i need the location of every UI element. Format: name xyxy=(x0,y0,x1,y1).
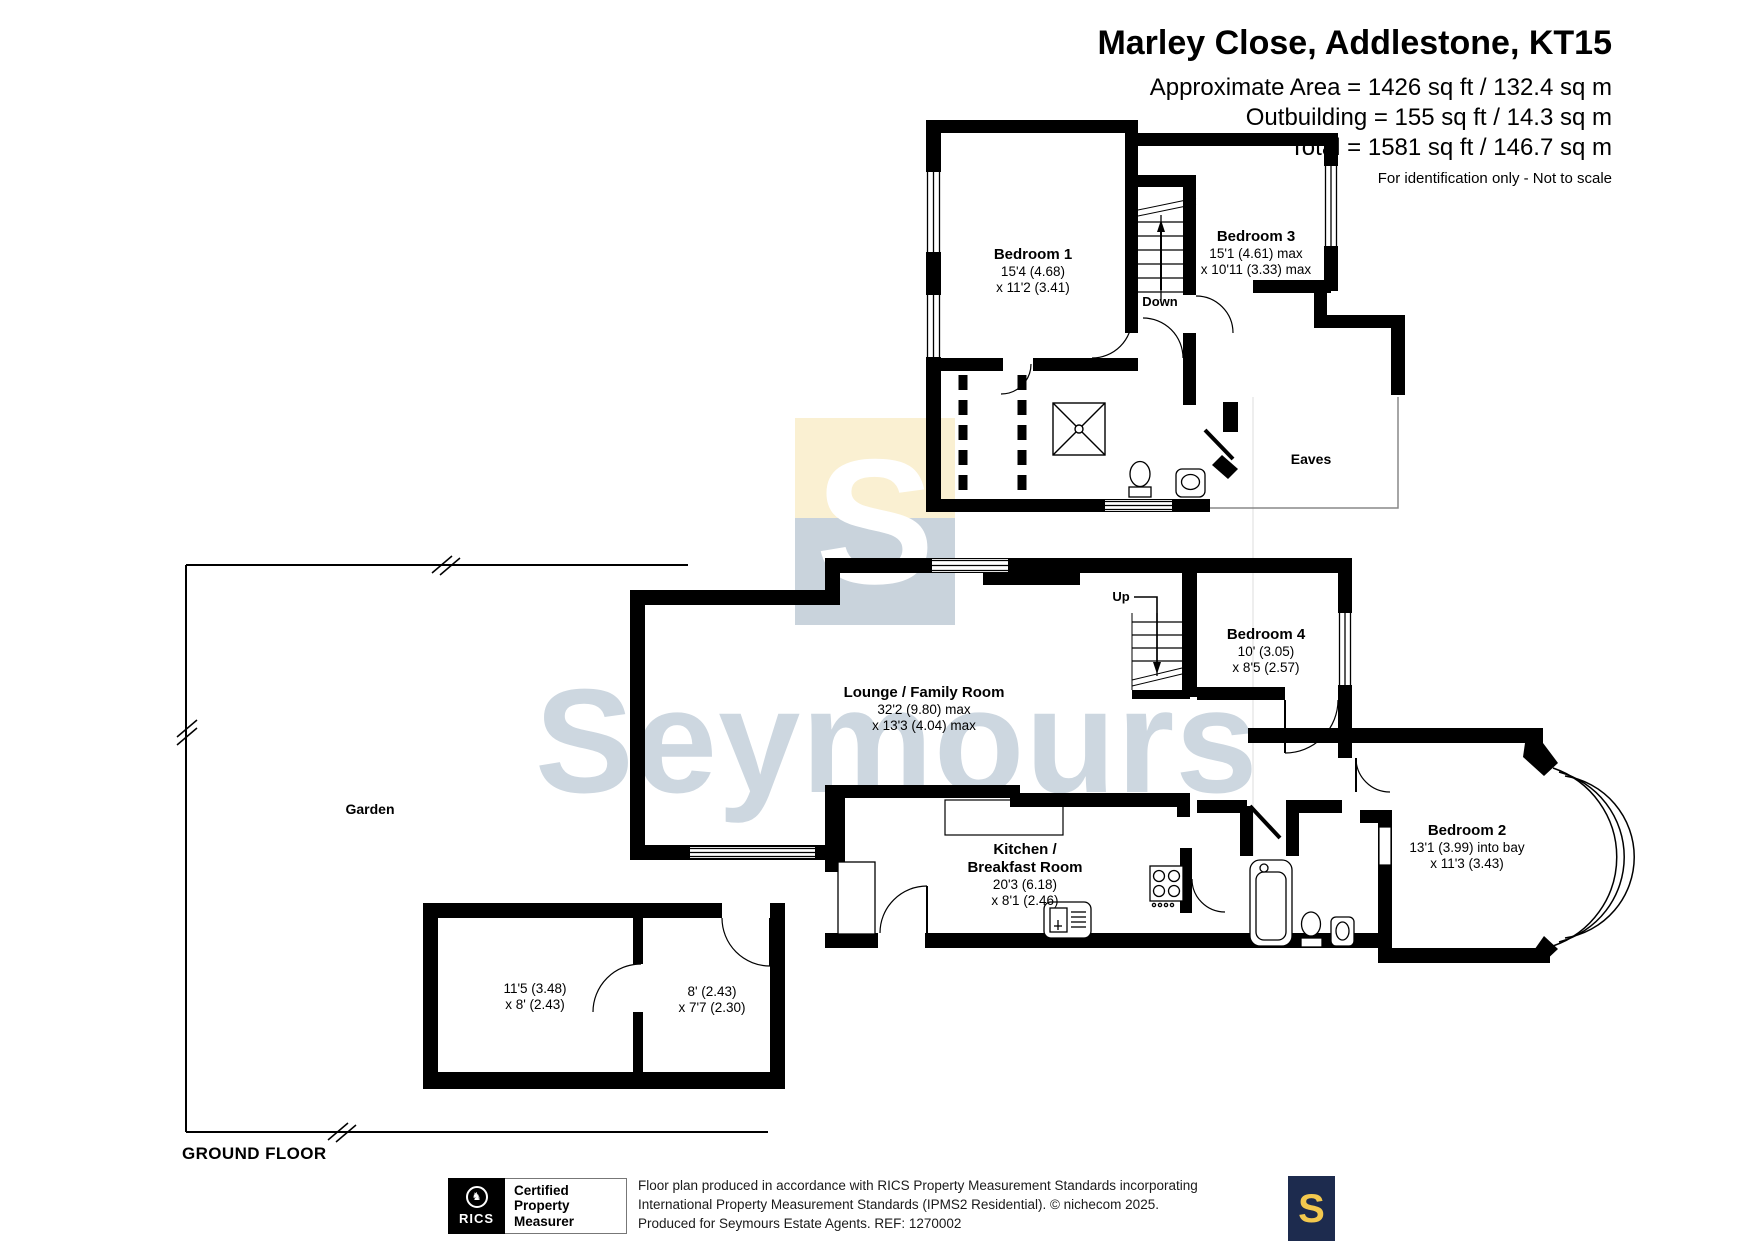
label-bedroom4: Bedroom 4 10' (3.05) x 8'5 (2.57) xyxy=(1227,626,1305,676)
kitchen-dim2: x 8'1 (2.46) xyxy=(967,893,1082,909)
window-bedroom1-lower xyxy=(926,295,941,357)
door-arc-outbuilding-internal xyxy=(593,964,641,1012)
door-leaf-eaves xyxy=(1205,430,1233,459)
lounge-dim1: 32'2 (9.80) max xyxy=(844,702,1005,718)
door-arc-bedroom4 xyxy=(1285,700,1338,753)
disclaimer-line2: International Property Measurement Stand… xyxy=(638,1195,1198,1214)
door-arc-bedroom2 xyxy=(1356,758,1390,792)
door-arc-bedroom3 xyxy=(1196,296,1233,333)
outbuilding-right-dim2: x 7'7 (2.30) xyxy=(678,1000,745,1016)
total-area: Total = 1581 sq ft / 146.7 sq m xyxy=(1097,133,1612,163)
label-eaves: Eaves xyxy=(1291,451,1331,467)
bedroom3-dim2: x 10'11 (3.33) max xyxy=(1201,262,1311,278)
lounge-dim2: x 13'3 (4.04) max xyxy=(844,718,1005,734)
footer-disclaimer: Floor plan produced in accordance with R… xyxy=(638,1176,1198,1233)
seymours-logo: S xyxy=(1288,1176,1335,1241)
bedroom4-dim1: 10' (3.05) xyxy=(1227,644,1305,660)
window-lounge-rear xyxy=(690,847,815,858)
label-outbuilding-left: 11'5 (3.48) x 8' (2.43) xyxy=(503,981,566,1013)
kitchen-name-line1: Kitchen / xyxy=(967,841,1082,859)
bedroom1-dim1: 15'4 (4.68) xyxy=(994,264,1072,280)
rics-certification: ♞ RICS Certified Property Measurer xyxy=(448,1178,627,1234)
lounge-name: Lounge / Family Room xyxy=(844,684,1005,702)
kitchen-dim1: 20'3 (6.18) xyxy=(967,877,1082,893)
bedroom2-dim1: 13'1 (3.99) into bay xyxy=(1409,840,1524,856)
stairs-up xyxy=(1132,597,1182,690)
bedroom4-name: Bedroom 4 xyxy=(1227,626,1305,644)
door-arc-kitchen-rear xyxy=(880,886,927,933)
outbuilding-left-dim1: 11'5 (3.48) xyxy=(503,981,566,997)
label-outbuilding-right: 8' (2.43) x 7'7 (2.30) xyxy=(678,984,745,1016)
rics-certified-box: Certified Property Measurer xyxy=(505,1178,627,1234)
label-bedroom2: Bedroom 2 13'1 (3.99) into bay x 11'3 (3… xyxy=(1409,822,1524,872)
door-arc-landing xyxy=(1143,318,1183,358)
outbuilding-area: Outbuilding = 155 sq ft / 14.3 sq m xyxy=(1097,103,1612,133)
label-lounge: Lounge / Family Room 32'2 (9.80) max x 1… xyxy=(844,684,1005,734)
sink-first-icon xyxy=(1176,469,1205,497)
label-bedroom1: Bedroom 1 15'4 (4.68) x 11'2 (3.41) xyxy=(994,246,1072,296)
toilet-first-icon xyxy=(1129,462,1151,498)
approximate-area: Approximate Area = 1426 sq ft / 132.4 sq… xyxy=(1097,73,1612,103)
sink-ground-icon xyxy=(1331,917,1354,946)
bedroom1-dim2: x 11'2 (3.41) xyxy=(994,280,1072,296)
bedroom2-dim2: x 11'3 (3.43) xyxy=(1409,856,1524,872)
first-floor-doors xyxy=(1001,296,1233,459)
kitchen-name-line2: Breakfast Room xyxy=(967,859,1082,877)
outbuilding-right-dim1: 8' (2.43) xyxy=(678,984,745,1000)
window-bedroom1-upper xyxy=(926,172,941,252)
label-stairs-up: Up xyxy=(1112,589,1129,604)
restricted-height-dashed-walls xyxy=(963,375,1022,497)
bedroom3-dim1: 15'1 (4.61) max xyxy=(1201,246,1311,262)
header: Marley Close, Addlestone, KT15 Approxima… xyxy=(1097,24,1612,187)
door-leaf-bathroom-ground xyxy=(1250,806,1280,838)
rics-brand-text: RICS xyxy=(459,1211,494,1226)
fridge-icon xyxy=(838,862,875,934)
door-arc-kitchen-hall xyxy=(1192,879,1225,912)
hob-icon xyxy=(1150,866,1183,907)
shower-icon xyxy=(1053,403,1105,455)
toilet-ground-icon xyxy=(1301,912,1322,947)
bath-icon xyxy=(1250,860,1292,946)
door-arc-outbuilding-entrance xyxy=(722,918,770,966)
rics-cert-line2: Property xyxy=(514,1198,626,1214)
label-bedroom3: Bedroom 3 15'1 (4.61) max x 10'11 (3.33)… xyxy=(1201,228,1311,278)
rics-lion-emblem-icon: ♞ xyxy=(466,1186,488,1208)
disclaimer-line1: Floor plan produced in accordance with R… xyxy=(638,1176,1198,1195)
bay-window xyxy=(1553,768,1634,946)
ground-floor-walls xyxy=(630,558,1558,963)
page-title: Marley Close, Addlestone, KT15 xyxy=(1097,24,1612,63)
rics-cert-line3: Measurer xyxy=(514,1214,626,1230)
window-bedroom4 xyxy=(1338,613,1352,685)
window-bathroom-first xyxy=(1105,500,1172,511)
bedroom3-name: Bedroom 3 xyxy=(1201,228,1311,246)
identification-note: For identification only - Not to scale xyxy=(1097,170,1612,187)
rics-cert-line1: Certified xyxy=(514,1183,626,1199)
seymours-logo-letter: S xyxy=(1298,1189,1325,1229)
label-garden: Garden xyxy=(345,801,394,817)
outbuilding-left-dim2: x 8' (2.43) xyxy=(503,997,566,1013)
bedroom2-wall-recess xyxy=(1379,827,1391,865)
ground-floor-label: GROUND FLOOR xyxy=(182,1144,327,1164)
window-lounge-front xyxy=(932,559,1008,572)
floorplan-page: Seymours S xyxy=(0,0,1755,1241)
bedroom4-dim2: x 8'5 (2.57) xyxy=(1227,660,1305,676)
rics-logo: ♞ RICS xyxy=(448,1178,505,1234)
bedroom2-name: Bedroom 2 xyxy=(1409,822,1524,840)
label-stairs-down: Down xyxy=(1142,294,1177,309)
bedroom1-name: Bedroom 1 xyxy=(994,246,1072,264)
label-kitchen: Kitchen / Breakfast Room 20'3 (6.18) x 8… xyxy=(967,841,1082,909)
disclaimer-line3: Produced for Seymours Estate Agents. REF… xyxy=(638,1214,1198,1233)
